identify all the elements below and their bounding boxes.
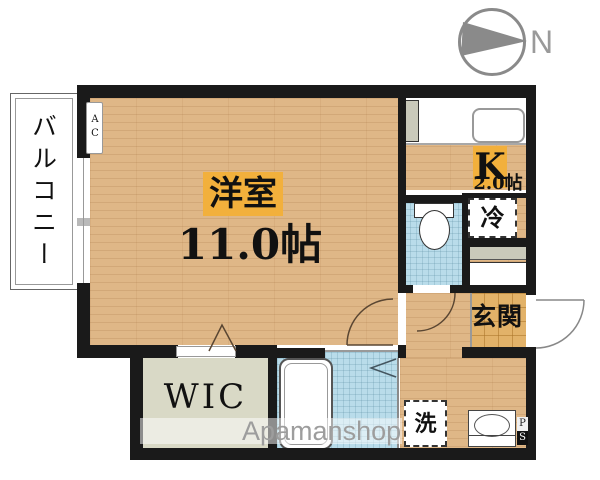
floor-plan: バルコニー AC 洋室 11.0帖 K 2.0帖 冷 玄関 WIC 洗 P S …: [0, 0, 600, 480]
kitchen-cabinet: [404, 100, 419, 142]
compass-circle: [458, 8, 526, 76]
wall-fridge-bottom: [462, 238, 526, 247]
balcony-label: バルコニー: [20, 103, 66, 283]
wall-top: [77, 85, 536, 98]
kitchen-sink: [472, 108, 525, 143]
ac-unit-box: AC: [86, 102, 103, 154]
washer-box: 洗: [404, 400, 447, 447]
wall-entrance-bottom: [462, 347, 536, 358]
watermark-text: Apamanshop: [242, 416, 401, 447]
bath-door-frame-line: [325, 350, 398, 352]
hallway-floor: [404, 293, 470, 358]
wall-toilet-top: [398, 195, 470, 203]
ac-unit-label: AC: [87, 103, 102, 153]
wall-toilet-bottom-left: [398, 285, 413, 293]
wic-door-opening: [176, 346, 236, 357]
wall-bathroom-top: [277, 348, 325, 358]
pipe-space-p: P: [517, 417, 528, 431]
entrance-label: 玄関: [470, 300, 524, 332]
pipe-space-s: S: [517, 431, 528, 445]
kitchen-size-label: 2.0帖: [468, 175, 528, 192]
entrance-door-arc: [536, 300, 584, 348]
main-room-door-opening: [398, 293, 406, 345]
toilet-door-opening: [413, 285, 450, 293]
window-balcony-divider: [77, 218, 90, 226]
shelf: [466, 246, 528, 260]
washbasin-bowl: [474, 414, 510, 437]
wall-mainroom-right-stub: [398, 345, 406, 358]
wall-cabinet-bottom: [462, 285, 526, 293]
pipe-space: P S: [517, 417, 528, 445]
washer-label: 洗: [414, 413, 436, 435]
main-room-name-label: 洋室: [203, 172, 283, 216]
refrigerator-box: 冷: [468, 198, 517, 238]
watermark-band: Apamanshop: [140, 418, 402, 444]
refrigerator-label: 冷: [481, 206, 505, 230]
washbasin: [468, 410, 516, 447]
main-room-size-label: 11.0帖: [150, 218, 350, 272]
wall-mainroom-bottom-left: [77, 345, 178, 358]
wall-bottom: [130, 448, 536, 460]
wic-label: WIC: [143, 375, 268, 419]
washbasin-divider: [469, 435, 515, 436]
toilet-bowl: [419, 210, 450, 250]
compass-north-label: N: [530, 24, 553, 61]
wall-mainroom-right: [398, 85, 406, 293]
